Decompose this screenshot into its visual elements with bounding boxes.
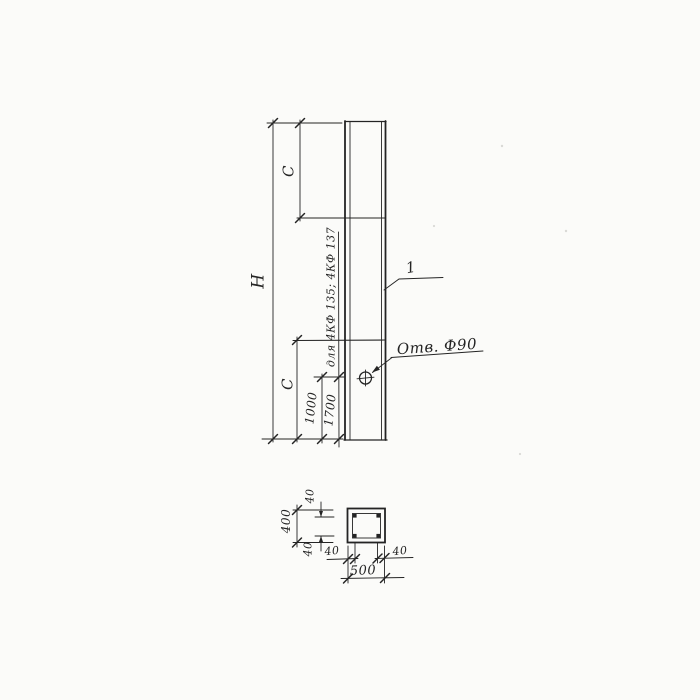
section-width-label: 500: [350, 564, 377, 578]
alt-marks-note: для 4КФ 135; 4КФ 137: [326, 227, 337, 367]
elevation-column-outline: [344, 121, 387, 440]
bottom-segment-dim-label: C: [281, 378, 296, 390]
rebar-dots: [353, 514, 380, 538]
leader-arrow-icon: [372, 366, 380, 373]
drawing-linework: [0, 0, 700, 700]
hole-offset-dim-1700: 1700: [322, 393, 337, 427]
top-segment-dim-label: C: [282, 165, 297, 177]
hole-offset-dim-1000: 1000: [303, 391, 318, 425]
section-cover-left-label: 40: [324, 545, 340, 558]
cover-arrow-icon: [319, 511, 323, 517]
drawing-sheet: H C C 1000 1700 для 4КФ 135; 4КФ 137 Отв…: [0, 0, 700, 700]
anchor-hole: [357, 370, 374, 386]
section-cover-bottom-label: 40: [303, 542, 314, 557]
section-cover-right-label: 40: [392, 545, 408, 558]
section-cover-top-label: 40: [305, 489, 316, 504]
cover-arrow-icon: [319, 536, 323, 542]
section-stirrup: [353, 514, 381, 539]
section-height-label: 400: [280, 509, 292, 533]
position-leader: [384, 278, 443, 291]
height-dim-label: H: [251, 273, 268, 288]
scan-specks: [433, 145, 567, 455]
